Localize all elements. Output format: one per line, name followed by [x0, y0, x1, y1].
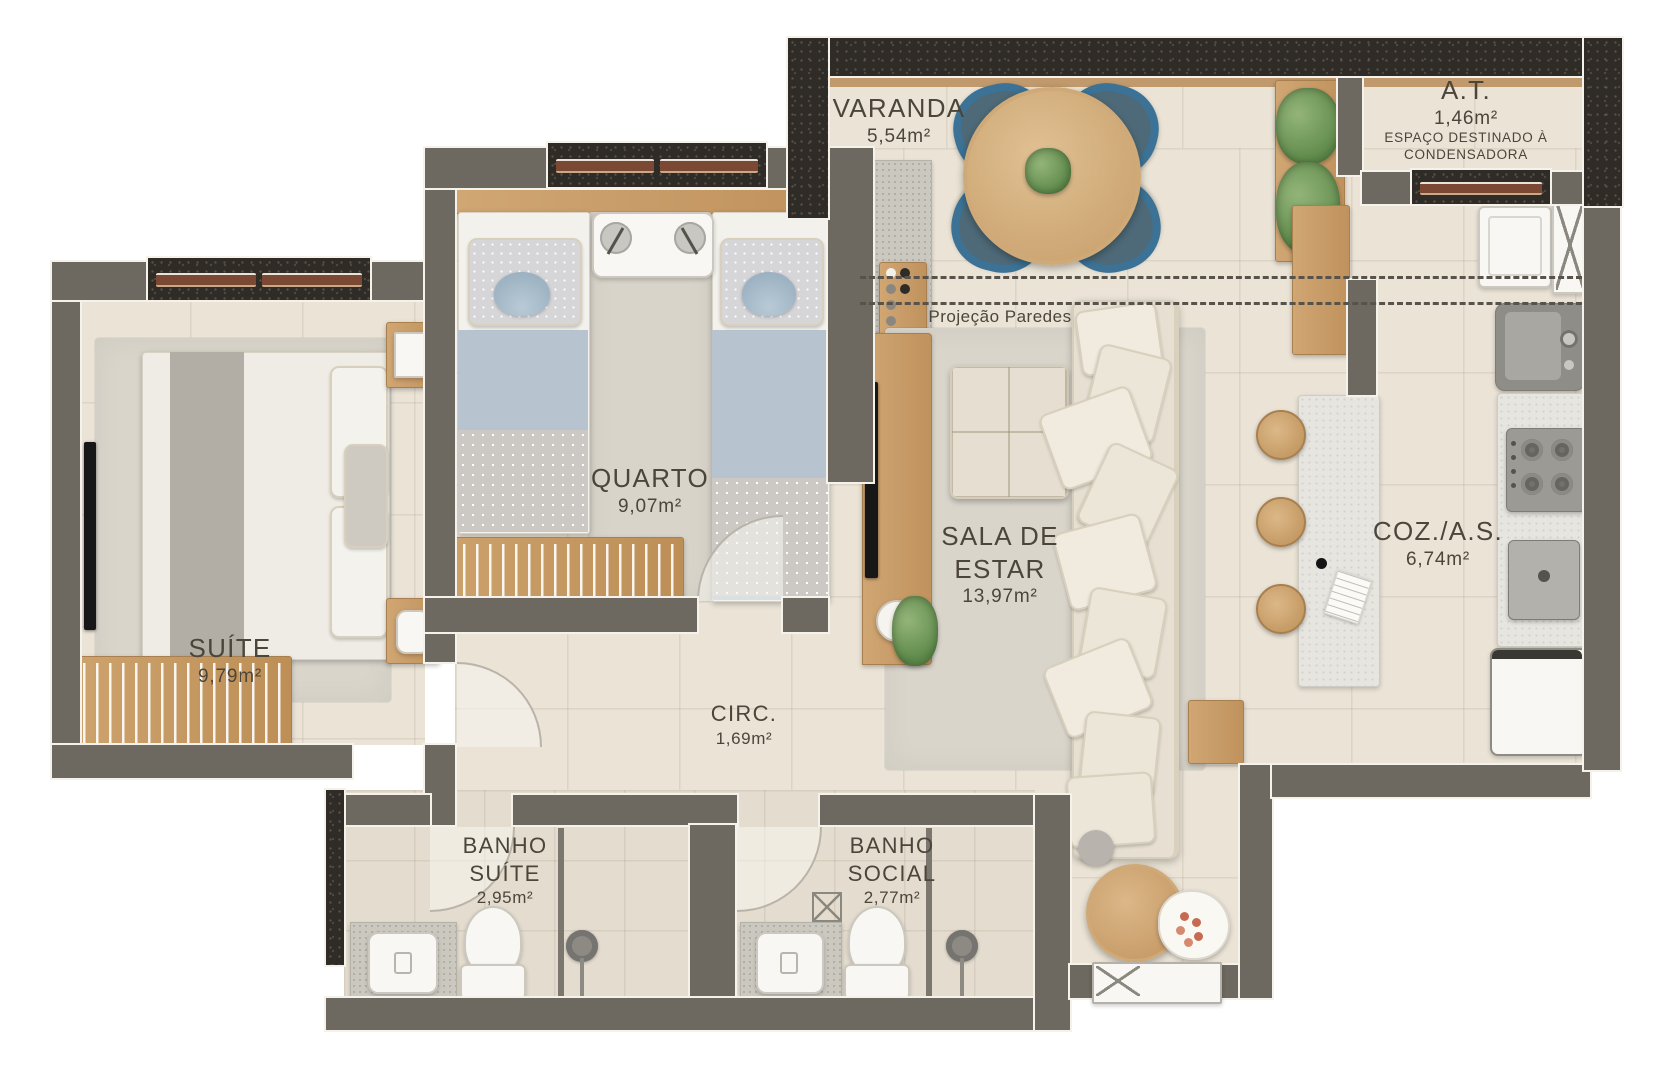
quarto-window-frame-left: [556, 159, 654, 173]
room-label-quarto: QUARTO 9,07m²: [591, 462, 709, 518]
washer-knob: [1560, 330, 1578, 348]
varanda-left-wall: [788, 38, 828, 218]
entry-door: [1092, 962, 1222, 1004]
shell-cushion-right: [742, 272, 796, 316]
banho-social-shower-arm: [960, 958, 964, 998]
sala-name-line1: SALA DE: [941, 520, 1059, 553]
flower-tray: [1158, 890, 1230, 960]
planter-plant-top: [1276, 88, 1340, 164]
island-faucet-dot: [1316, 558, 1327, 569]
bathroom-top-wall-c: [820, 795, 1070, 825]
flower-petals: [1180, 912, 1189, 921]
room-label-banho-social: BANHO SOCIAL 2,77m²: [848, 832, 937, 908]
twin-bed-left-throw: [458, 430, 588, 532]
kitchen-faucet: [1538, 570, 1550, 582]
varanda-top-wall: [788, 38, 1622, 76]
monstera-plant: [892, 596, 938, 666]
x-cabinet: [1552, 196, 1588, 294]
at-name: A.T.: [1384, 74, 1547, 107]
island-stool-3: [1256, 584, 1306, 634]
quarto-bottom-wall-right: [783, 598, 828, 632]
bathroom-top-wall-a: [340, 795, 430, 825]
refrigerator: [1490, 648, 1588, 756]
suite-tv: [84, 442, 96, 630]
quarto-window: [548, 143, 766, 187]
suite-window-frame-left: [156, 273, 256, 287]
banho-social-area: 2,77m²: [848, 887, 937, 908]
sala-area: 13,97m²: [941, 585, 1059, 609]
shell-cushion-left: [494, 272, 550, 316]
laundry-tank-basin: [1488, 216, 1542, 276]
room-label-coz: COZ./A.S. 6,74m²: [1373, 515, 1503, 571]
banho-suite-shower-arm: [580, 958, 584, 998]
banho-social-sink-drain: [780, 952, 798, 974]
burner-4: [1551, 473, 1573, 495]
right-wall-top: [1584, 38, 1622, 206]
vestibule-right-wall: [1240, 765, 1272, 998]
quarto-headboard-shelf: [455, 185, 830, 214]
room-label-circ: CIRC. 1,69m²: [711, 700, 777, 749]
burner-3: [1521, 473, 1543, 495]
room-label-banho-suite: BANHO SUÍTE 2,95m²: [463, 832, 548, 908]
suite-pillow-accent: [344, 444, 388, 548]
banho-suite-toilet-tank: [460, 964, 526, 1000]
quarto-right-wall: [828, 148, 873, 482]
entry-door-cross: [1096, 966, 1140, 996]
at-window: [1412, 170, 1550, 204]
shaft-symbol: [812, 892, 842, 922]
banho-social-line2: SOCIAL: [848, 860, 937, 888]
banho-suite-sink-drain: [394, 952, 412, 974]
wall-projection-line-1: [860, 276, 1582, 279]
washer-drum: [1505, 312, 1561, 380]
floor-plan: VARANDA 5,54m² A.T. 1,46m² ESPAÇO DESTIN…: [0, 0, 1674, 1080]
room-label-at: A.T. 1,46m² ESPAÇO DESTINADO À CONDENSAD…: [1384, 74, 1547, 164]
suite-bed-throw: [170, 352, 244, 658]
projection-label: Projeção Paredes: [928, 306, 1071, 327]
stove-cooktop: [1506, 428, 1586, 512]
quarto-name: QUARTO: [591, 462, 709, 495]
banho-suite-line2: SUÍTE: [463, 860, 548, 888]
banho-suite-shower-glass: [558, 828, 564, 998]
suite-window: [148, 258, 370, 300]
varanda-name: VARANDA: [833, 92, 966, 125]
island-stool-1: [1256, 410, 1306, 460]
bathroom-left-exterior-stub: [326, 790, 344, 965]
refrigerator-top-band: [1492, 650, 1582, 659]
quarto-area: 9,07m²: [591, 495, 709, 519]
circ-area: 1,69m²: [711, 728, 777, 749]
kitchen-tall-cabinet: [1292, 205, 1350, 355]
kitchen-island: [1298, 395, 1380, 687]
banho-suite-area: 2,95m²: [463, 887, 548, 908]
room-label-sala: SALA DE ESTAR 13,97m²: [941, 520, 1059, 609]
kitchen-wall-stub: [1348, 280, 1376, 395]
suite-window-frame-right: [262, 273, 362, 287]
shaft-cross: [814, 894, 840, 920]
bathroom-top-wall-b: [513, 795, 737, 825]
coz-name: COZ./A.S.: [1373, 515, 1503, 548]
at-window-frame: [1420, 182, 1542, 195]
sala-name-line2: ESTAR: [941, 553, 1059, 586]
bathroom-bottom-wall: [326, 998, 1070, 1030]
suite-area: 9,79m²: [188, 665, 271, 689]
circ-name: CIRC.: [711, 700, 777, 728]
burner-2: [1551, 439, 1573, 461]
banho-suite-line1: BANHO: [463, 832, 548, 860]
suite-name: SUÍTE: [188, 632, 271, 665]
social-right-wall: [1035, 795, 1070, 1030]
stove-knobs: [1511, 441, 1516, 446]
at-area: 1,46m²: [1384, 107, 1547, 131]
south-wall-right: [1272, 765, 1590, 797]
vestibule-cabinet: [1188, 700, 1244, 764]
coz-area: 6,74m²: [1373, 548, 1503, 572]
table-centerpiece-plant: [1025, 148, 1071, 194]
suite-quarto-shared-wall-upper: [425, 148, 455, 662]
at-note-1: ESPAÇO DESTINADO À: [1384, 130, 1547, 147]
suite-bottom-wall: [52, 745, 352, 778]
side-pot: [1078, 830, 1114, 866]
quarto-bottom-wall-left: [425, 598, 697, 632]
banho-social-toilet-tank: [844, 964, 910, 1000]
suite-left-wall: [52, 262, 80, 778]
at-note-2: CONDENSADORA: [1384, 147, 1547, 164]
room-label-suite: SUÍTE 9,79m²: [188, 632, 271, 688]
island-stool-2: [1256, 497, 1306, 547]
wall-projection-line-2: [860, 302, 1582, 305]
right-wall: [1584, 202, 1620, 770]
quarto-window-frame-right: [660, 159, 758, 173]
banho-social-line1: BANHO: [848, 832, 937, 860]
room-label-varanda: VARANDA 5,54m²: [833, 92, 966, 148]
varanda-area: 5,54m²: [833, 125, 966, 149]
projection-text: Projeção Paredes: [928, 306, 1071, 327]
burner-1: [1521, 439, 1543, 461]
